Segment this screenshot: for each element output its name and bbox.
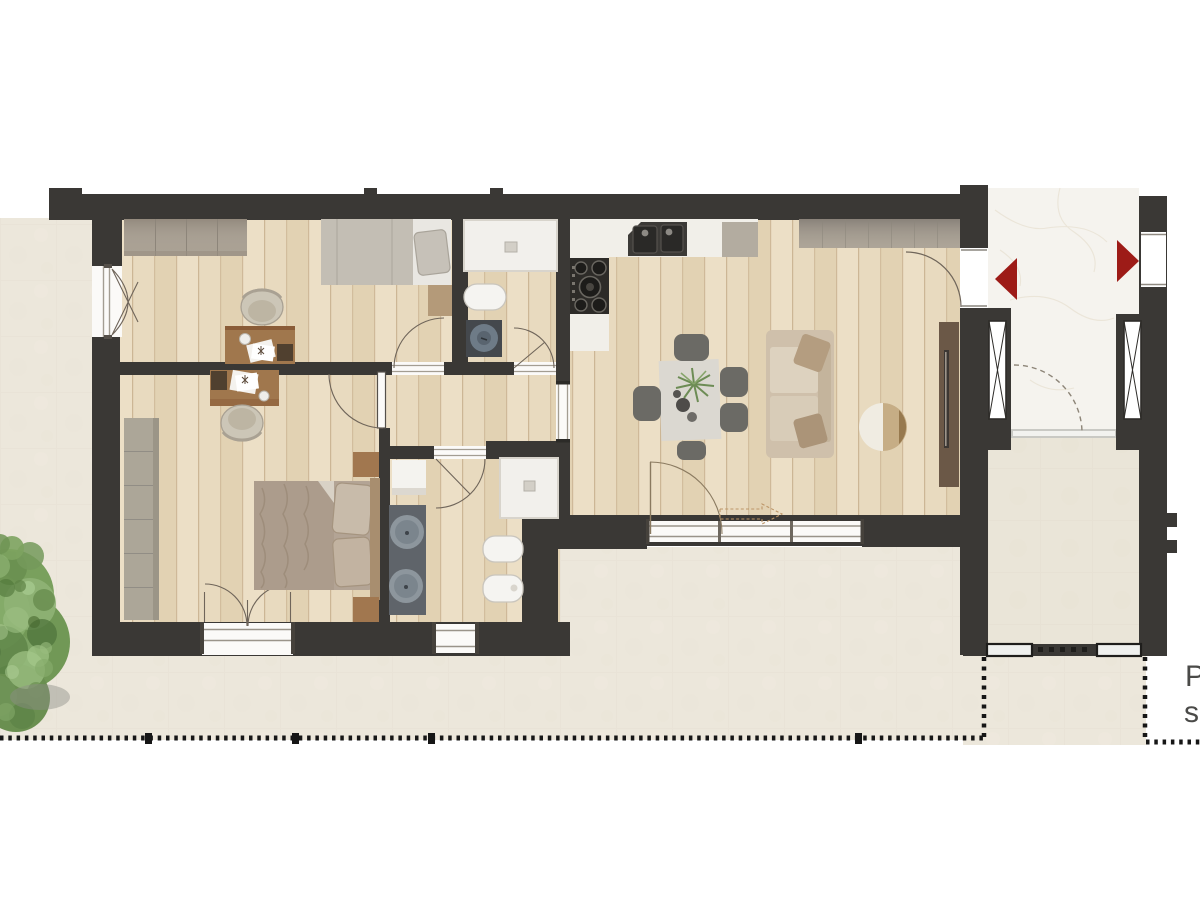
svg-text:sc: sc: [1184, 696, 1200, 729]
svg-text:Pi: Pi: [1185, 660, 1200, 693]
